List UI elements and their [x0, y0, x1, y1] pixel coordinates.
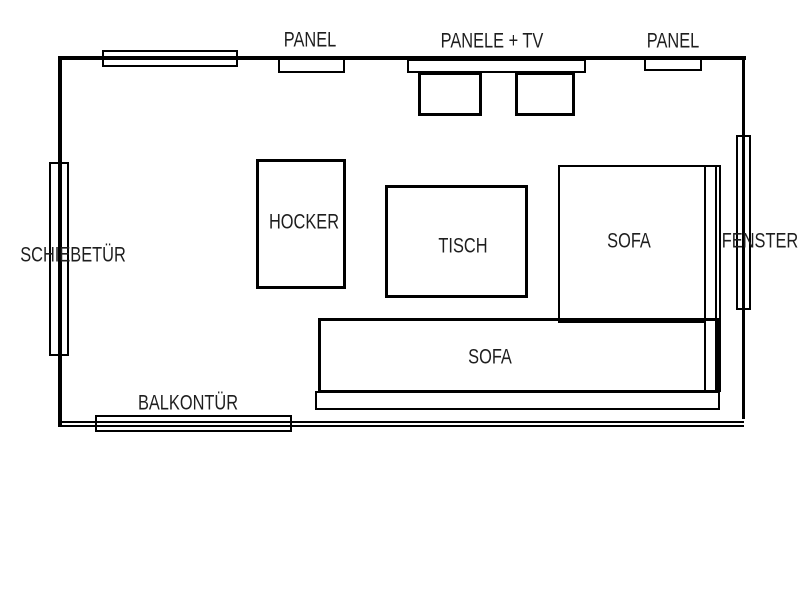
tv-cabinet-left — [418, 72, 482, 116]
floorplan-canvas: PANEL PANELE + TV PANEL SCHIEBETÜR FENST… — [0, 0, 800, 600]
balcony-door-label: BALKONTÜR — [138, 392, 238, 413]
sliding-door-label: SCHIEBETÜR — [20, 245, 126, 266]
table-label: TISCH — [438, 236, 487, 257]
wall-panel-unlabeled — [102, 50, 238, 67]
window-label: FENSTER — [722, 230, 798, 251]
panele-tv-label: PANELE + TV — [441, 30, 544, 51]
tv-panel — [407, 56, 586, 73]
wall-panel-left — [278, 58, 345, 74]
sofa-bottom-rect — [318, 318, 719, 393]
sofa-right-label: SOFA — [607, 231, 651, 252]
panel-right-label: PANEL — [647, 31, 700, 52]
balcony-door-symbol — [95, 415, 292, 432]
stool-label: HOCKER — [269, 211, 339, 232]
panel-left-label: PANEL — [284, 30, 337, 51]
window-symbol — [736, 135, 751, 310]
sofa-bottom-front-edge — [315, 391, 720, 410]
tv-cabinet-right — [515, 72, 575, 116]
sofa-bottom-label: SOFA — [468, 347, 512, 368]
wall-panel-right — [644, 58, 702, 72]
